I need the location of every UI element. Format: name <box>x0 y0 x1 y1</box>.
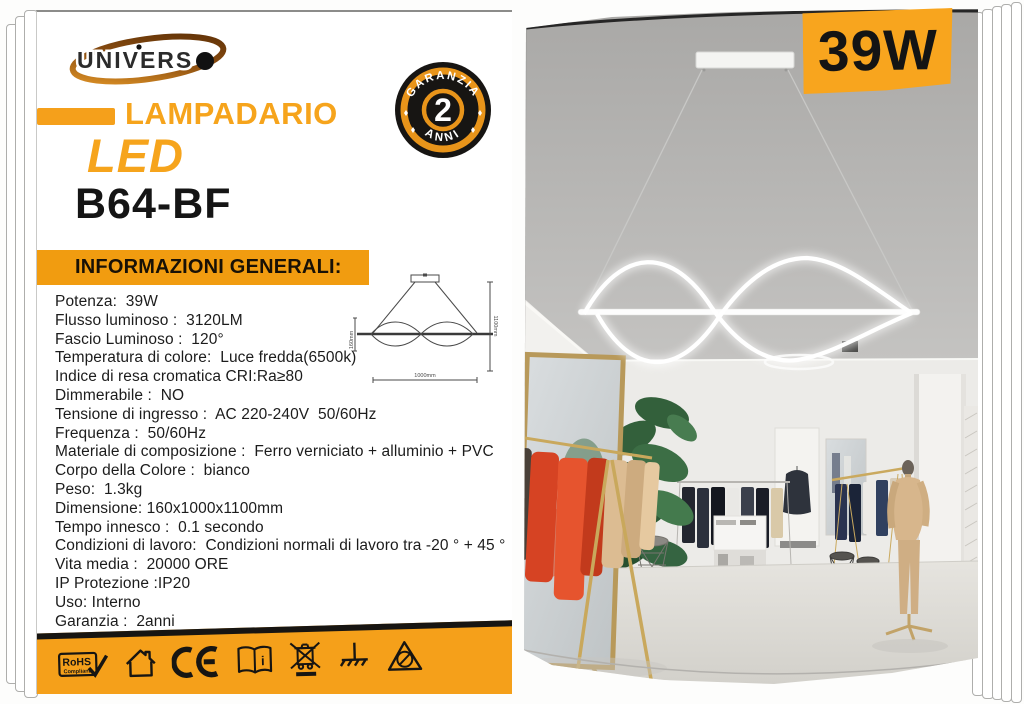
lamp-bar <box>578 309 920 315</box>
drawing-width-label: 1000mm <box>414 373 436 379</box>
dimension-drawing: 160mm 1100mm 1000mm <box>349 270 503 396</box>
page-edge <box>1011 2 1022 703</box>
spec-line: Dimensione: 160x1000x1100mm <box>55 500 511 519</box>
read-manual-icon: i <box>235 643 274 678</box>
spec-line: Condizioni di lavoro: Condizioni normali… <box>55 537 511 556</box>
rohs-icon: RoHS Compliant <box>57 648 110 683</box>
spec-line: Materiale di composizione : Ferro vernic… <box>55 443 511 462</box>
product-photo-page <box>512 8 978 696</box>
lamp-canopy <box>696 52 794 68</box>
esd-triangle-icon <box>385 639 424 674</box>
spec-line: Peso: 1.3kg <box>55 481 511 500</box>
logo-text: UNIVERS <box>77 47 193 73</box>
spec-line: Corpo della Colore : bianco <box>55 462 511 481</box>
rohs-sub-label: Compliant <box>63 669 90 676</box>
warranty-years: 2 <box>434 92 452 128</box>
catalog-page: UNIVERS LAMPADARIO LED B64-BF GARANZIA <box>0 0 1024 704</box>
certification-icons-row: RoHS Compliant i <box>36 625 512 686</box>
logo-dot-icon <box>196 52 214 70</box>
rohs-label: RoHS <box>62 656 91 669</box>
spec-line: Tempo innesco : 0.1 secondo <box>55 519 511 538</box>
power-badge-label: 39W <box>817 17 938 85</box>
spec-line: Tensione di ingresso : AC 220-240V 50/60… <box>55 406 511 425</box>
title-accent-bar <box>37 108 115 125</box>
logo-i-dot-icon <box>136 44 141 49</box>
power-badge: 39W <box>802 8 953 94</box>
spec-line: Uso: Interno <box>55 594 511 613</box>
spec-line: Vita media : 20000 ORE <box>55 556 511 575</box>
drawing-lamp-height-label: 160mm <box>349 330 355 349</box>
showroom-photo <box>512 8 978 696</box>
universo-logo: UNIVERS <box>63 26 233 92</box>
product-model: B64-BF <box>75 180 232 229</box>
indoor-house-icon <box>123 646 158 681</box>
weee-bin-icon <box>287 640 324 679</box>
warranty-badge: GARANZIA ANNI 2 <box>393 60 493 160</box>
drawing-height-label: 1100mm <box>492 316 498 337</box>
section-header: INFORMAZIONI GENERALI: <box>37 250 369 285</box>
spec-line: IP Protezione :IP20 <box>55 575 511 594</box>
spec-sheet-page: UNIVERS LAMPADARIO LED B64-BF GARANZIA <box>36 10 512 694</box>
product-category-title: LAMPADARIO <box>125 96 338 132</box>
manual-i-label: i <box>261 653 265 668</box>
earth-ground-icon <box>337 639 372 676</box>
ce-mark-icon <box>171 645 222 678</box>
spec-line: Frequenza : 50/60Hz <box>55 425 511 444</box>
product-tech-title: LED <box>87 128 184 183</box>
